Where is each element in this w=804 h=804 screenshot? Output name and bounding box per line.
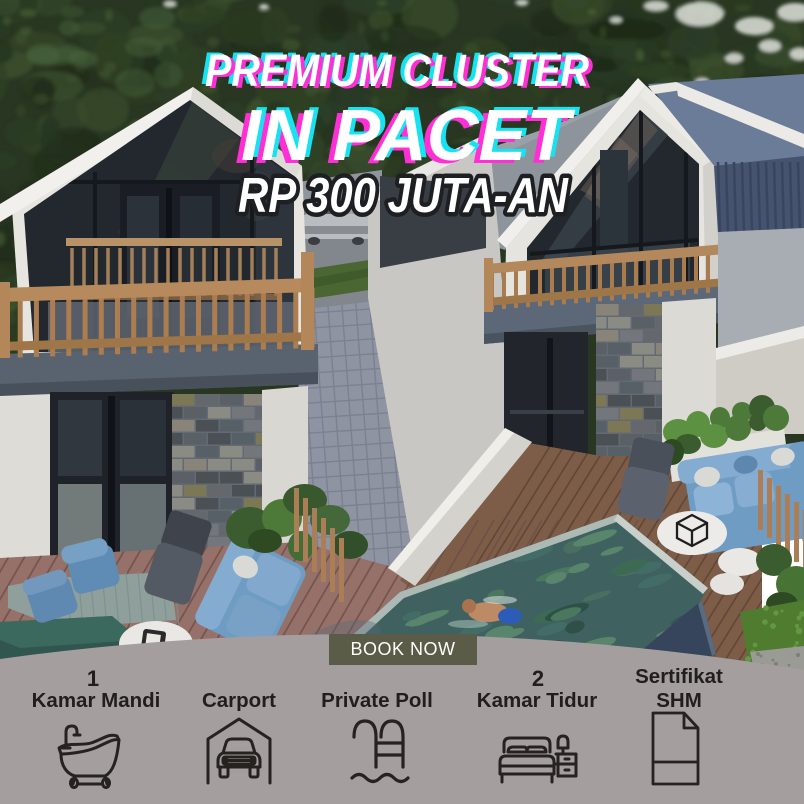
svg-text:PREMIUM CLUSTER: PREMIUM CLUSTER	[205, 45, 589, 96]
svg-text:IN PACET: IN PACET	[241, 96, 576, 176]
svg-text:RP 300 JUTA-AN: RP 300 JUTA-AN	[238, 169, 569, 223]
